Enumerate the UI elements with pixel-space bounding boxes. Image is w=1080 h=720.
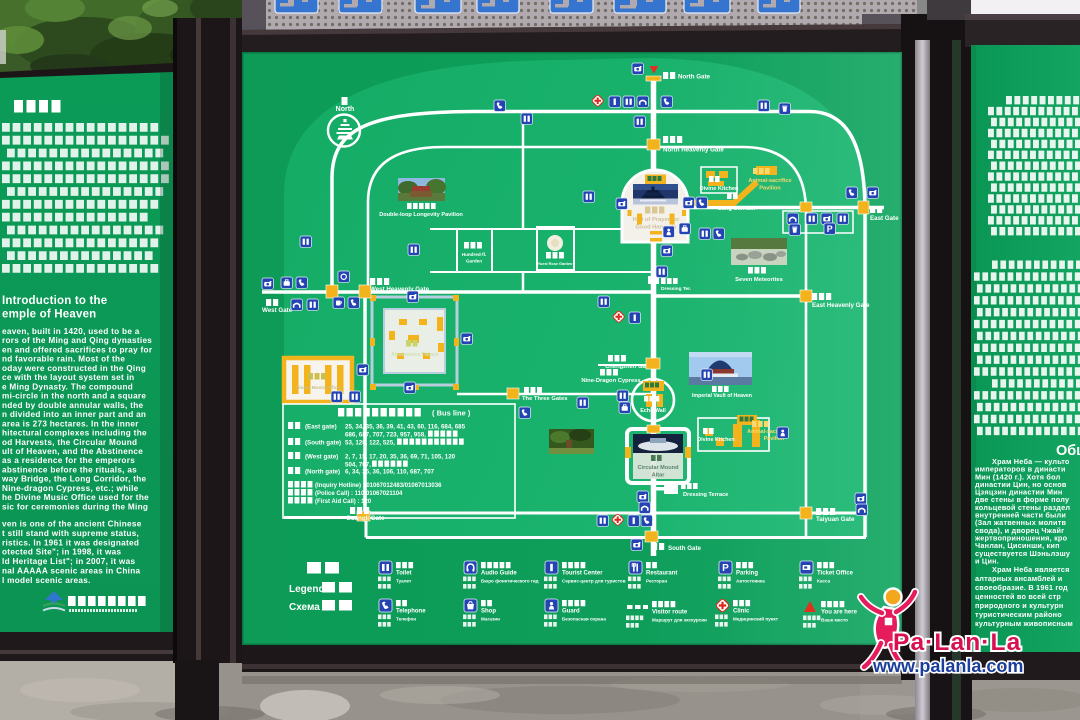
svg-text:Сервис-центр для туристов: Сервис-центр для туристов — [562, 579, 626, 584]
svg-text:Храм Неба является: Храм Неба является — [992, 565, 1070, 574]
svg-text:Long Corridor: Long Corridor — [718, 206, 756, 212]
svg-text:Telephone: Telephone — [396, 609, 426, 615]
svg-text:Схема: Схема — [289, 602, 320, 613]
svg-text:Clinic: Clinic — [733, 609, 750, 615]
svg-text:Guard: Guard — [562, 609, 580, 615]
svg-text:Dressing Terrace: Dressing Terrace — [683, 492, 728, 498]
svg-text:природного и культурн: природного и культурн — [975, 601, 1063, 610]
svg-text:nd favorable rain. Most of the: nd favorable rain. Most of the — [2, 355, 125, 364]
svg-text:Маршрут для экскурсии: Маршрут для экскурсии — [652, 618, 707, 623]
svg-text:rors of the Ming and Qing dyna: rors of the Ming and Qing dynasties — [2, 336, 152, 345]
svg-text:своеобразие. В 1961 год: своеобразие. В 1961 год — [975, 583, 1068, 592]
svg-text:Legend: Legend — [289, 584, 325, 595]
svg-text:(North gate): (North gate) — [305, 469, 340, 476]
svg-text:West Heavenly Gate: West Heavenly Gate — [370, 286, 430, 293]
svg-text:way Bridge, the Long Corridor,: way Bridge, the Long Corridor, the — [1, 475, 147, 484]
svg-text:Yuexi Rose Garden: Yuexi Rose Garden — [538, 262, 573, 266]
svg-text:mi-circle in the north and a s: mi-circle in the north and a square — [2, 392, 146, 401]
svg-text:East Heavenly Gate: East Heavenly Gate — [812, 302, 870, 309]
svg-text:You are here: You are here — [821, 610, 858, 616]
svg-text:Restaurant: Restaurant — [646, 571, 677, 577]
svg-text:Double-loop Longevity Pavilion: Double-loop Longevity Pavilion — [379, 212, 463, 218]
svg-text:Медицинский пункт: Медицинский пункт — [733, 616, 779, 622]
svg-text:oday were constructed in the Q: oday were constructed in the Qing — [2, 364, 146, 373]
svg-text:ld Heritage List"; in 2007, it: ld Heritage List"; in 2007, it was — [2, 557, 135, 566]
svg-text:504, 707,: 504, 707, — [345, 462, 371, 469]
svg-text:Parking: Parking — [736, 571, 758, 577]
svg-text:Toilet: Toilet — [396, 571, 412, 577]
svg-text:Tourist Center: Tourist Center — [562, 571, 603, 577]
svg-text:Shop: Shop — [481, 609, 496, 615]
svg-text:Altar: Altar — [652, 473, 666, 479]
svg-text:West Gate: West Gate — [262, 307, 293, 314]
svg-text:Dressing Ter.: Dressing Ter. — [661, 286, 691, 292]
svg-text:t still stand with supreme sta: t still stand with supreme status, — [2, 529, 139, 538]
svg-text:North: North — [336, 106, 355, 113]
svg-text:North Gate: North Gate — [678, 74, 711, 81]
svg-text:eaven, built in 1420, used to: eaven, built in 1420, used to be a — [2, 327, 140, 336]
svg-text:53, 120, 122, 525,: 53, 120, 122, 525, — [345, 440, 395, 447]
svg-text:Visitor route: Visitor route — [652, 610, 688, 616]
svg-text:ce with the layout system set: ce with the layout system set in — [2, 373, 134, 382]
svg-text:Туалет: Туалет — [396, 579, 412, 584]
svg-text:Nine-Dragon Cypress: Nine-Dragon Cypress — [581, 378, 640, 384]
svg-text:6, 34, 35, 36, 106, 110, 687,: 6, 34, 35, 36, 106, 110, 687, 707 — [345, 469, 435, 476]
svg-text:( Bus line ): ( Bus line ) — [432, 409, 471, 418]
svg-text:hitectural complexes including: hitectural complexes including the — [2, 429, 147, 438]
svg-text:Seven Meteorites: Seven Meteorites — [735, 277, 783, 283]
svg-text:Ваше место: Ваше место — [821, 618, 848, 623]
svg-text:Ticket Office: Ticket Office — [817, 571, 854, 577]
svg-text:Ресторан: Ресторан — [646, 579, 667, 584]
svg-text:abstinence before the rituals,: abstinence before the rituals, as — [2, 466, 137, 475]
svg-text:Abstinence Palace: Abstinence Palace — [391, 352, 439, 358]
svg-text:Taiyuan Gate: Taiyuan Gate — [816, 516, 855, 523]
svg-text:ценностей во всей стр: ценностей во всей стр — [975, 592, 1061, 601]
svg-text:e Ming Dynasty. The compound: e Ming Dynasty. The compound — [2, 382, 133, 391]
svg-text:as a residence for the emperor: as a residence for the emperors — [2, 456, 135, 465]
svg-text:25, 34, 35, 36, 39, 41, 43, 60: 25, 34, 35, 36, 39, 41, 43, 60, 116, 684… — [345, 424, 466, 431]
svg-text:en and offered sacrifices to p: en and offered sacrifices to pray for — [2, 346, 153, 355]
svg-text:www.palanla.com: www.palanla.com — [872, 656, 1023, 676]
svg-text:культурным живописным: культурным живописным — [975, 619, 1073, 628]
svg-text:ult of Heaven, and the Abstine: ult of Heaven, and the Abstinence — [2, 447, 143, 456]
svg-text:Бюро фонетического гид: Бюро фонетического гид — [481, 578, 539, 584]
svg-text:sic for ceremonies during the: sic for ceremonies during the Ming — [2, 502, 148, 511]
svg-text:he Divine Music Office used fo: he Divine Music Office used for the — [2, 493, 149, 502]
svg-text:(East gate): (East gate) — [305, 424, 337, 431]
svg-text:emple of Heaven: emple of Heaven — [2, 309, 96, 321]
svg-text:South Gate: South Gate — [668, 545, 702, 552]
svg-text:od Harvests, the Circular Moun: od Harvests, the Circular Mound — [2, 438, 137, 447]
svg-text:ven is one of the ancient Chin: ven is one of the ancient Chinese — [2, 520, 142, 529]
svg-text:otected Site"; in 1998, it was: otected Site"; in 1998, it was — [2, 548, 122, 557]
svg-text:The Three Gates: The Three Gates — [522, 396, 567, 402]
svg-text:Nine-dragon Cypress, etc.; whi: Nine-dragon Cypress, etc.; while — [2, 484, 139, 493]
svg-text:Chengzhen Gate: Chengzhen Gate — [605, 364, 652, 370]
svg-text:Безопасная охрана: Безопасная охрана — [562, 617, 606, 622]
svg-text:Pavilion: Pavilion — [759, 186, 781, 192]
svg-text:Echo Wall: Echo Wall — [640, 408, 666, 414]
svg-text:Introduction to the: Introduction to the — [2, 295, 107, 307]
svg-text:North Heavenly Gate: North Heavenly Gate — [663, 147, 724, 154]
svg-text:(Inquiry Hotline) : 0106701248: (Inquiry Hotline) : 01067012483/01067013… — [315, 483, 442, 489]
svg-text:Hundred-fl.: Hundred-fl. — [462, 252, 487, 257]
svg-text:East Gate: East Gate — [870, 215, 899, 222]
svg-text:686, 687, 707, 723, 957, 958,: 686, 687, 707, 723, 957, 958, — [345, 432, 426, 439]
svg-text:Garden: Garden — [466, 259, 482, 264]
svg-text:Imperial Vault of Heaven: Imperial Vault of Heaven — [692, 393, 752, 399]
svg-text:Circular Mound: Circular Mound — [637, 465, 679, 471]
svg-text:nal AAAAA scenic areas in Chin: nal AAAAA scenic areas in China — [2, 567, 141, 576]
svg-text:Guangli Gate: Guangli Gate — [346, 515, 385, 522]
svg-text:(Police Call) : 110/010: (Police Call) : 110/01067021104 — [315, 491, 403, 497]
svg-text:туристическим районо: туристическим районо — [975, 610, 1062, 619]
svg-text:area is 273 hectares. In the i: area is 273 hectares. In the inner — [2, 419, 139, 428]
svg-text:(First Aid Call) : 120: (First Aid Call) : 120 — [315, 499, 372, 505]
svg-text:Animal-sacrifice: Animal-sacrifice — [748, 178, 791, 184]
svg-text:Магазин: Магазин — [481, 617, 500, 622]
svg-text:(South gate): (South gate) — [305, 440, 341, 447]
svg-text:nded by double annular walls,: nded by double annular walls, the — [2, 401, 144, 410]
svg-text:l model scenic areas.: l model scenic areas. — [2, 576, 91, 585]
svg-text:алтарных ансамблей и: алтарных ансамблей и — [975, 574, 1062, 583]
svg-text:Divine Kitchen: Divine Kitchen — [697, 437, 734, 443]
svg-text:(West gate): (West gate) — [305, 454, 338, 461]
svg-text:Divine Music Office: Divine Music Office — [296, 385, 341, 391]
svg-text:2, 7, 15, 17, 20, 35, 36, 69,: 2, 7, 15, 17, 20, 35, 36, 69, 71, 105, 1… — [345, 454, 456, 461]
svg-text:Audio Guide: Audio Guide — [481, 571, 517, 577]
svg-text:Автостоянка: Автостоянка — [736, 579, 765, 584]
svg-text:n divided into an inner part a: n divided into an inner part and an — [2, 410, 146, 419]
svg-text:ristics. In 1961 it was design: ristics. In 1961 it was designated — [2, 538, 139, 547]
svg-text:Касса: Касса — [817, 579, 831, 584]
svg-text:Pa·Lan·La: Pa·Lan·La — [893, 629, 1021, 656]
svg-text:Телефон: Телефон — [396, 616, 416, 622]
svg-text:Divine Kitchen: Divine Kitchen — [700, 186, 739, 192]
